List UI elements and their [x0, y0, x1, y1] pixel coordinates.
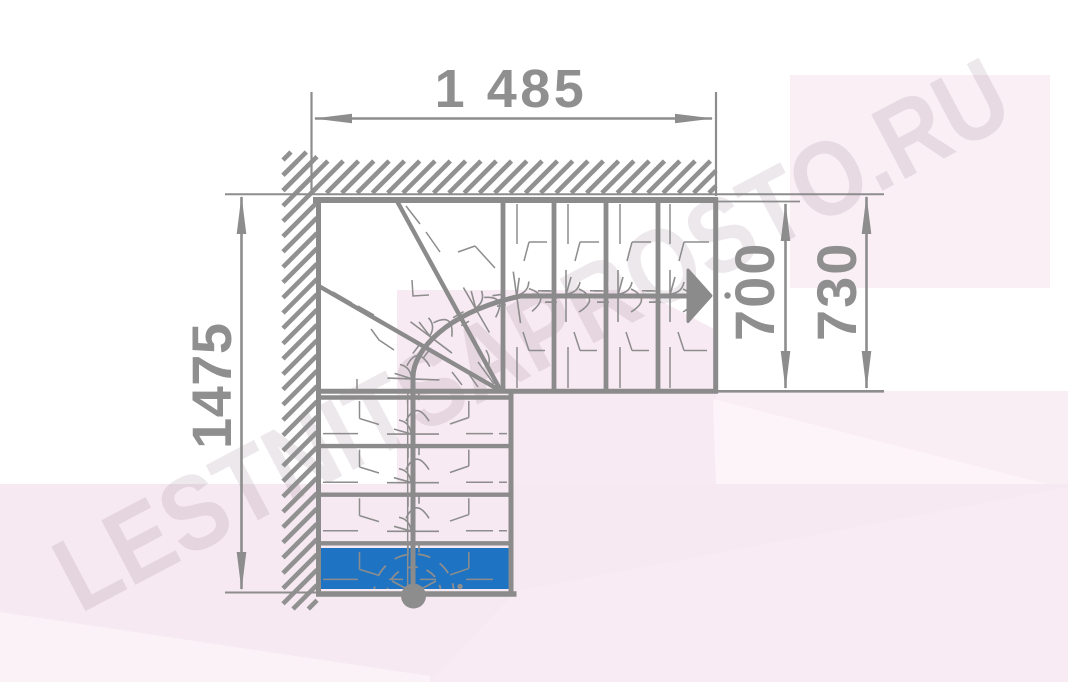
svg-text:1475: 1475 [180, 322, 243, 449]
svg-text:1 485: 1 485 [435, 59, 588, 119]
svg-text:730: 730 [805, 242, 868, 341]
svg-text:700: 700 [723, 242, 786, 341]
